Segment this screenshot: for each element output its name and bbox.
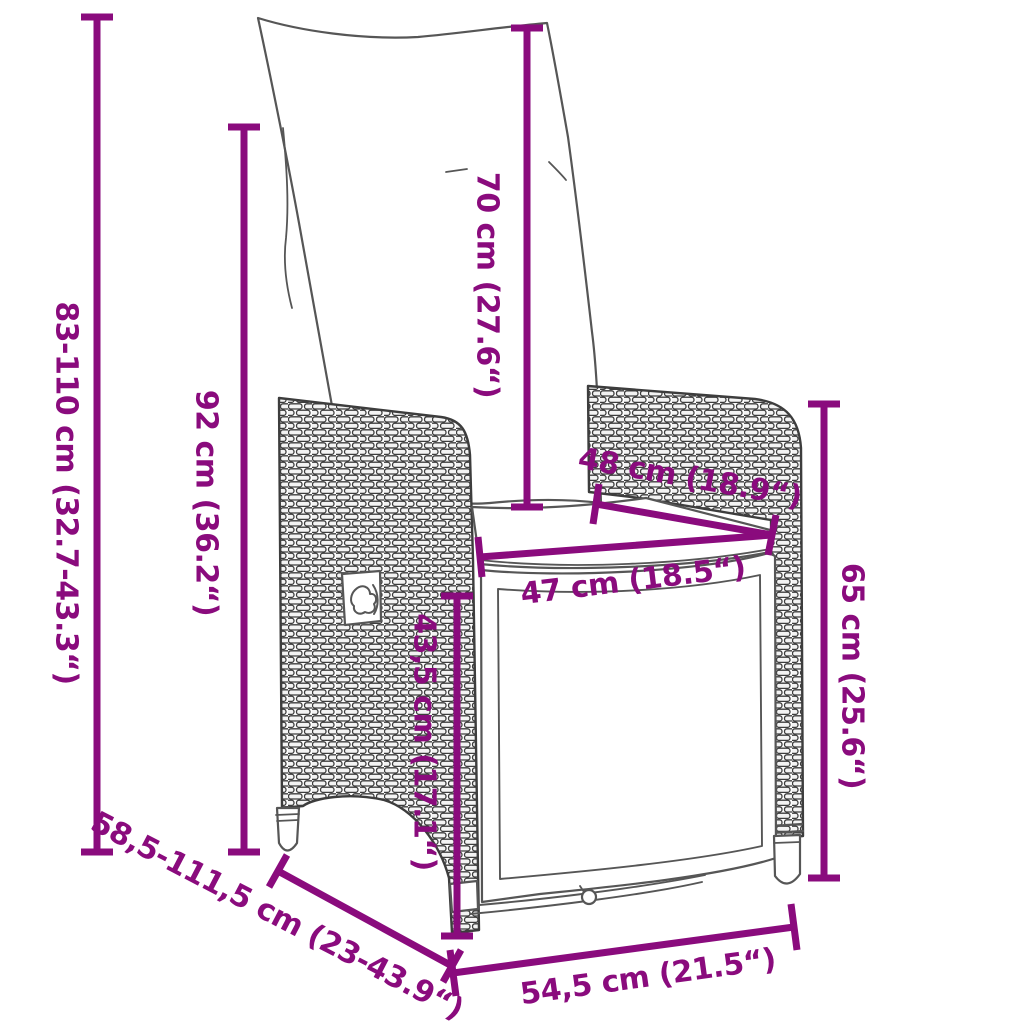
dimension-label-backrest-height: 92 cm (36.2“) xyxy=(189,390,224,616)
chair-dimension-diagram: 83-110 cm (32.7-43.3“) 92 cm (36.2“) 70 … xyxy=(0,0,1024,1024)
left-leg xyxy=(276,808,299,851)
dimension-line-total-height xyxy=(81,17,113,852)
dimension-line-backrest-height xyxy=(228,127,260,852)
dimension-label-total-height: 83-110 cm (32.7-43.3“) xyxy=(49,301,84,684)
right-leg xyxy=(774,835,800,884)
dimension-label-cushion-height: 70 cm (27.6“) xyxy=(470,172,505,398)
dimension-diagram-page: 83-110 cm (32.7-43.3“) 92 cm (36.2“) 70 … xyxy=(0,0,1024,1024)
dimension-label-front-edge-height: 43,5 cm (17.1“) xyxy=(407,613,442,871)
dimension-label-base-width: 54,5 cm (21.5“) xyxy=(518,942,778,1013)
dimension-label-armrest-height: 65 cm (25.6“) xyxy=(835,563,870,789)
recline-handle xyxy=(342,571,381,625)
front-panel xyxy=(468,553,776,914)
left-side-panel xyxy=(279,398,479,933)
